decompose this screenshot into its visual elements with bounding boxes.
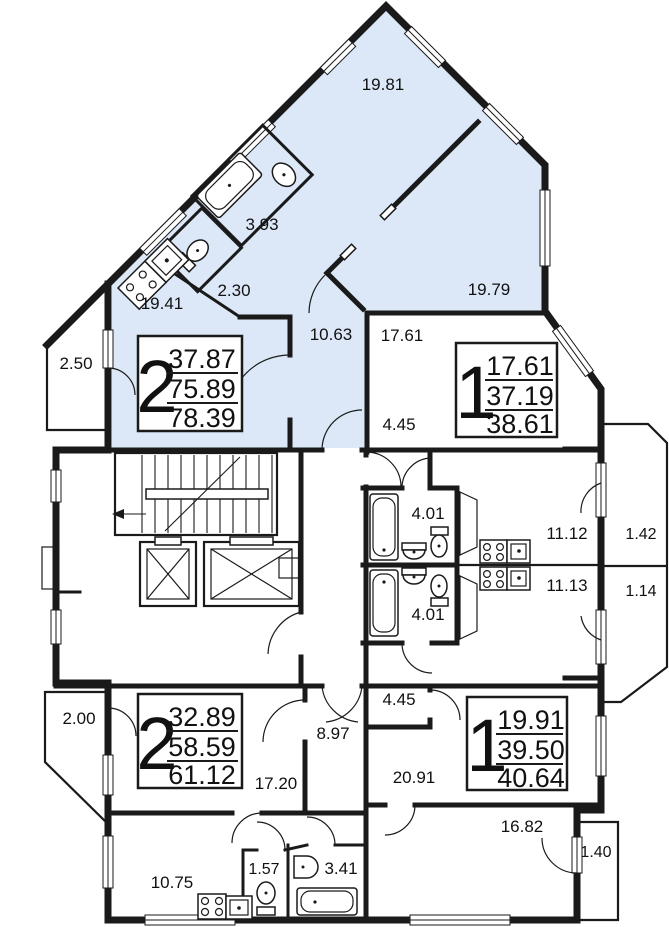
stove-icon [480,567,507,590]
sink-icon [294,856,318,878]
toilet-icon [431,527,448,557]
bathtub-icon [370,494,398,560]
apartment-living-area: 32.89 [168,702,236,732]
room-label-1-42: 1.42 [625,526,656,543]
room-label-4-01-upper: 4.01 [411,504,444,523]
apartment-total-area: 40.64 [497,763,565,793]
elevator-icon [204,537,299,606]
room-label-2-50: 2.50 [59,354,92,373]
apartment-area: 37.19 [486,381,554,411]
apartment-area: 39.50 [497,735,565,765]
stove-icon [198,894,226,919]
bathtub-icon [370,570,398,636]
floor-plan: 2 37.87 75.89 78.39 1 17.61 37.19 38.61 … [0,0,669,927]
room-label-3-41: 3.41 [324,859,357,878]
staircase [112,453,277,535]
stove-icon [480,540,507,563]
apartment-stamp-top: 2 37.87 75.89 78.39 [136,336,242,433]
floor-plan-page: 2 37.87 75.89 78.39 1 17.61 37.19 38.61 … [0,0,669,927]
apartment-total-area: 38.61 [486,409,554,439]
apartment-stamp-right: 1 17.61 37.19 38.61 [455,343,557,439]
apartment-stamp-bottom-right: 1 19.91 39.50 40.64 [466,697,567,793]
apartment-area: 75.89 [168,374,236,404]
sink-icon [402,568,426,584]
toilet-icon [257,882,275,915]
toilet-icon [431,575,448,606]
room-label-2-30: 2.30 [217,281,250,300]
room-label-17-20: 17.20 [255,774,298,793]
room-label-11-12: 11.12 [546,524,587,543]
room-label-19-41: 19.41 [141,294,184,313]
room-label-20-91: 20.91 [393,768,436,787]
room-label-10-75: 10.75 [151,873,194,892]
room-label-17-61: 17.61 [381,326,424,345]
sink-icon [507,540,530,563]
apartment-living-area: 37.87 [168,344,236,374]
sink-icon [507,567,530,590]
stairs-icon [112,455,272,533]
apartment-area: 58.59 [168,732,236,762]
room-label-4-01-lower: 4.01 [411,605,444,624]
room-label-4-45-top: 4.45 [382,415,415,434]
room-label-8-97: 8.97 [316,724,349,743]
room-label-1-40: 1.40 [580,844,611,861]
apartment-total-area: 61.12 [168,760,236,790]
room-label-19-81: 19.81 [362,75,405,94]
room-label-1-14: 1.14 [625,583,656,600]
sink-icon [402,543,426,559]
apartment-stamp-bottom-left: 2 32.89 58.59 61.12 [136,694,242,790]
elevators [140,537,299,606]
apartment-living-area: 19.91 [497,705,565,735]
room-label-19-79: 19.79 [468,280,511,299]
apartment-living-area: 17.61 [486,351,554,381]
room-label-3-93: 3.93 [245,215,278,234]
room-label-4-45-bottom: 4.45 [382,690,415,709]
room-label-11-13: 11.13 [546,576,587,595]
apartment-total-area: 78.39 [168,403,236,433]
room-label-2-00: 2.00 [62,709,95,728]
room-label-10-63: 10.63 [310,325,353,344]
room-label-1-57: 1.57 [248,861,279,878]
sink-icon [226,896,252,919]
room-label-16-82: 16.82 [501,817,544,836]
elevator-icon [140,537,196,606]
bathtub-icon [297,888,357,915]
